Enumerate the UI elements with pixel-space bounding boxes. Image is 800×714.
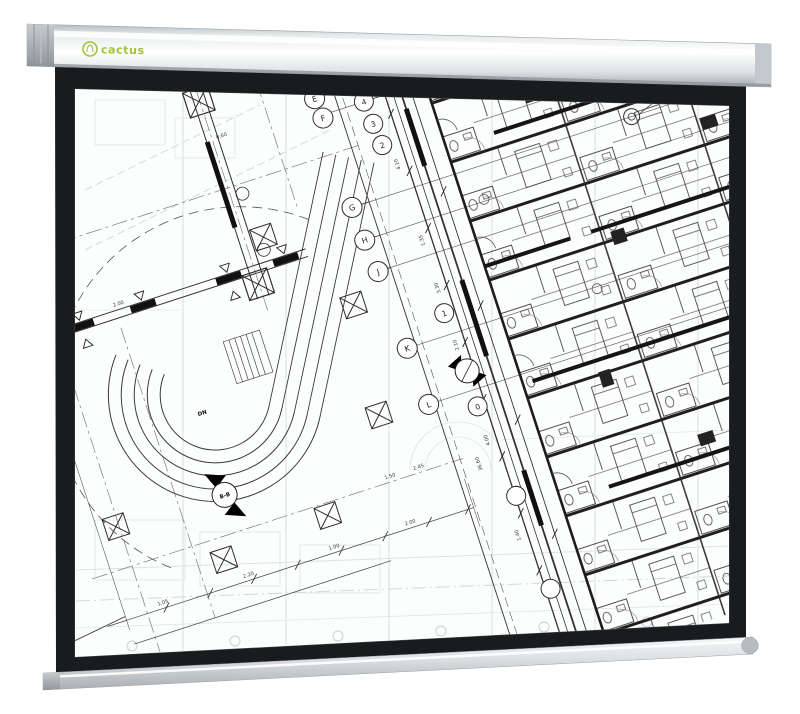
housing-end-cap-right [755, 44, 771, 87]
product-render: E F G H J K L 4 3 2 1 0 [0, 0, 800, 714]
brand-logo-text: cactus [101, 43, 145, 57]
projection-screen-product-photo: E F G H J K L 4 3 2 1 0 [0, 0, 800, 714]
bottom-bar-end-cap-left [43, 672, 60, 690]
bottom-bar-end-cap-right [742, 637, 759, 654]
